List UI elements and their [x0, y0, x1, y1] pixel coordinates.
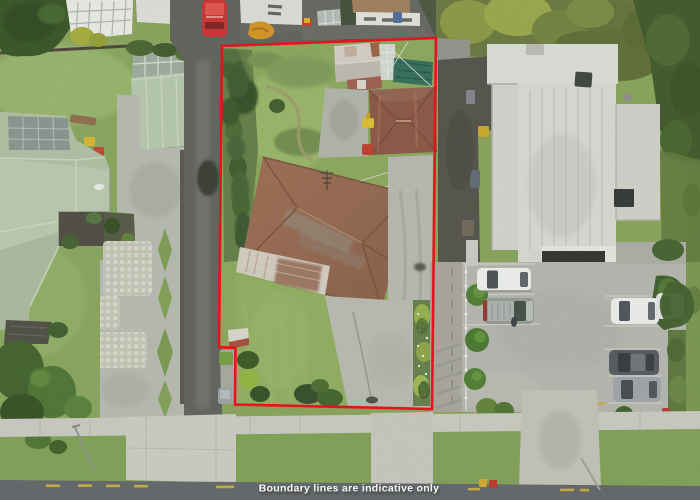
svg-text:Boundary lines are indicative: Boundary lines are indicative only [259, 483, 440, 495]
